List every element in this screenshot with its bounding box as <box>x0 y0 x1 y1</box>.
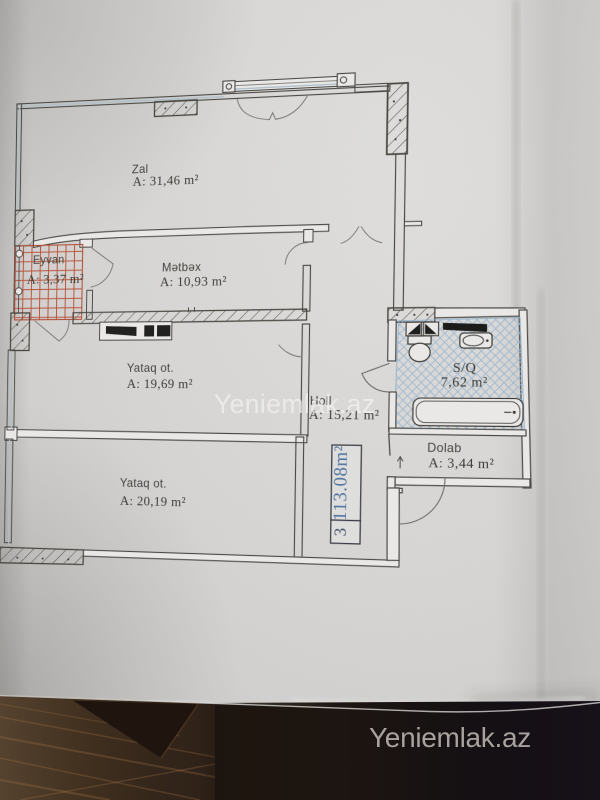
svg-text:Eyvan: Eyvan <box>33 254 65 267</box>
svg-text:A: 10,93 m²: A: 10,93 m² <box>160 273 227 289</box>
svg-text:Yataq ot.: Yataq ot. <box>127 362 174 375</box>
svg-text:A: 20,19 m²: A: 20,19 m² <box>120 493 186 509</box>
svg-text:Yataq ot.: Yataq ot. <box>120 477 167 491</box>
svg-text:A: 31,46 m²: A: 31,46 m² <box>133 172 199 189</box>
svg-text:113.08m²: 113.08m² <box>329 445 351 521</box>
svg-text:Mətbəx: Mətbəx <box>162 261 202 274</box>
svg-text:A: 3,44 m²: A: 3,44 m² <box>428 455 494 472</box>
svg-text:Dolab: Dolab <box>427 442 462 456</box>
svg-text:3: 3 <box>331 527 350 536</box>
svg-text:7,62 m²: 7,62 m² <box>441 374 488 390</box>
svg-text:A: 19,69 m²: A: 19,69 m² <box>127 376 193 391</box>
svg-text:A: 3,37 m²: A: 3,37 m² <box>27 271 84 286</box>
svg-text:Yeniemlak.az: Yeniemlak.az <box>369 722 531 753</box>
